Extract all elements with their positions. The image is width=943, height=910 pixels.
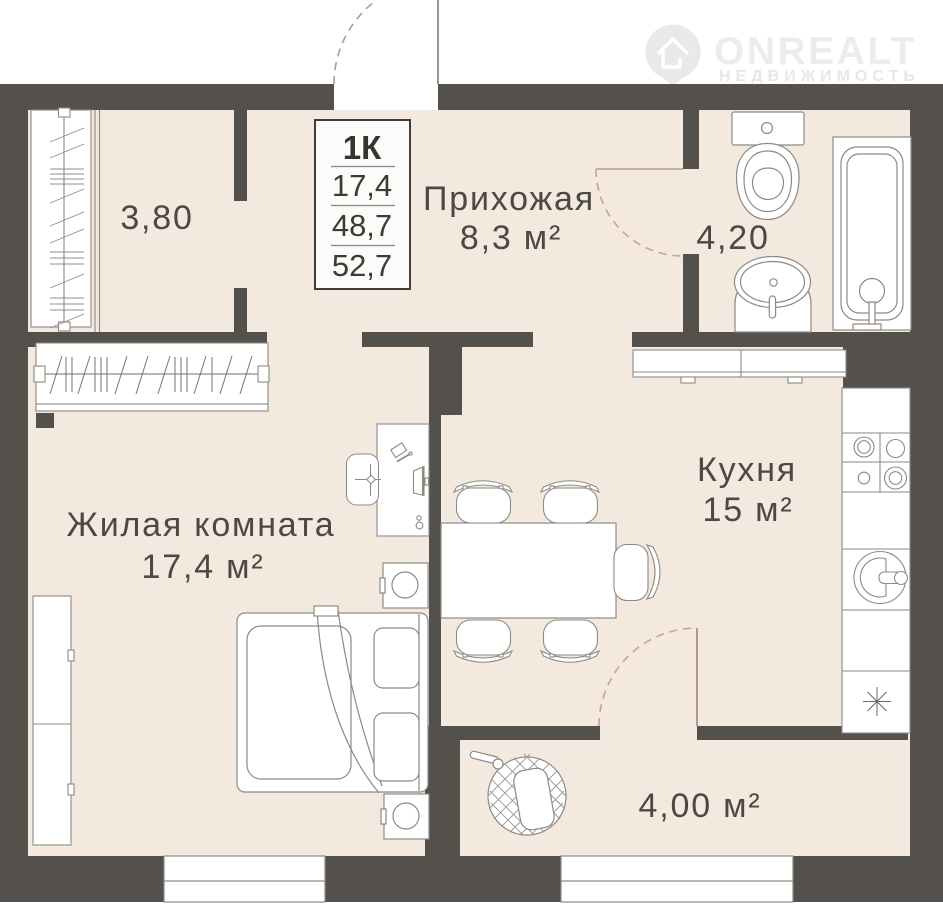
svg-text:Жилая комната: Жилая комната [67,506,336,544]
svg-text:8,3 м²: 8,3 м² [460,219,562,257]
svg-text:Прихожая: Прихожая [423,180,595,218]
svg-text:3,80: 3,80 [120,199,193,237]
svg-text:ONREALT: ONREALT [714,30,917,73]
svg-text:НЕДВИЖИМОСТЬ: НЕДВИЖИМОСТЬ [719,68,920,85]
svg-text:52,7: 52,7 [332,248,392,283]
svg-text:4,00 м²: 4,00 м² [639,787,762,825]
svg-text:15 м²: 15 м² [703,491,794,529]
svg-text:17,4: 17,4 [332,168,392,203]
svg-text:1К: 1К [343,129,382,166]
svg-text:48,7: 48,7 [332,208,392,243]
svg-text:4,20: 4,20 [696,219,769,257]
svg-text:Кухня: Кухня [697,451,797,489]
svg-text:17,4 м²: 17,4 м² [142,548,265,586]
